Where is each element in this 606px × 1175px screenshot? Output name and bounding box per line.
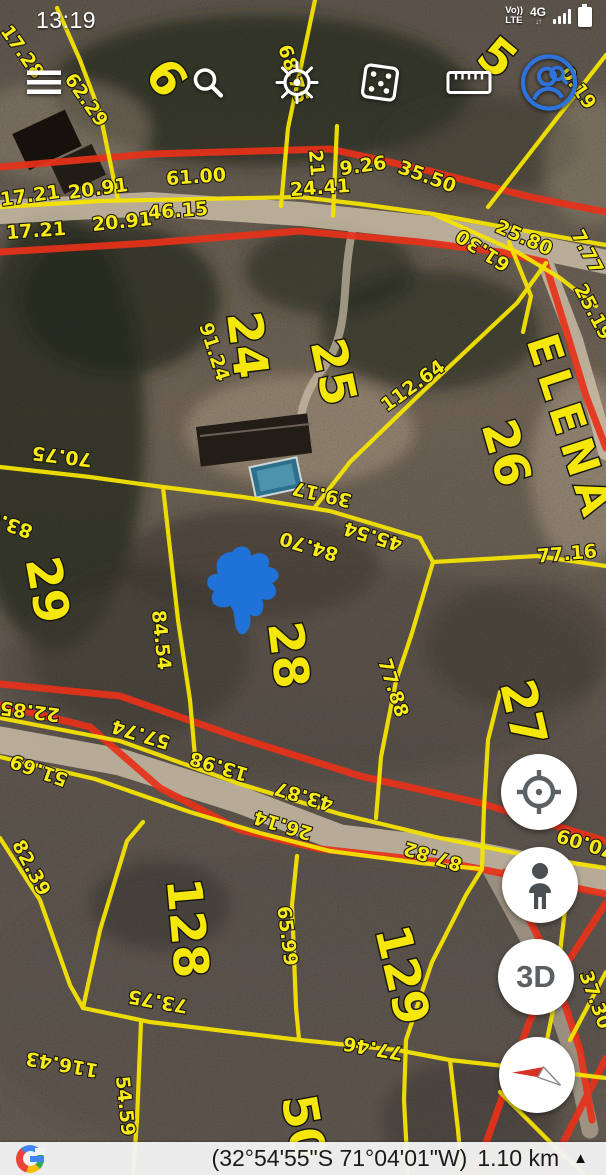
- data-activity-arrows: ↓↑: [530, 18, 546, 26]
- search-icon[interactable]: [190, 65, 226, 106]
- three-d-label: 3D: [516, 959, 556, 995]
- status-bar: 13:19 Vo)) LTE 4G ↓↑: [0, 0, 606, 40]
- app-screen: 17.2862.2968.750.1917.2120.9161.0046.151…: [0, 0, 606, 1175]
- measurement-label: 17.21: [5, 218, 66, 244]
- compass-button[interactable]: [499, 1037, 575, 1113]
- ruler-icon[interactable]: [444, 69, 494, 102]
- map-toolbar: [0, 52, 606, 118]
- map-info-bar[interactable]: (32°54'55"S 71°04'01"W) 1.10 km ▲: [0, 1142, 606, 1175]
- my-location-button[interactable]: [501, 754, 577, 830]
- compass-needle-icon: [508, 1046, 566, 1104]
- three-d-button[interactable]: 3D: [498, 939, 574, 1015]
- measurement-label: 46.15: [147, 198, 208, 224]
- measurement-label: 21: [304, 149, 328, 177]
- crosshair-target-icon: [513, 766, 565, 818]
- pegman-icon: [515, 858, 565, 912]
- scale-text: 1.10 km: [477, 1145, 559, 1172]
- measurement-label: 61.00: [165, 164, 226, 190]
- clock: 13:19: [36, 7, 96, 34]
- menu-icon[interactable]: [24, 68, 64, 103]
- volte-indicator: Vo)) LTE: [505, 6, 523, 26]
- battery-icon: [578, 7, 592, 27]
- account-search-icon[interactable]: [518, 52, 580, 119]
- dice-icon[interactable]: [357, 60, 403, 111]
- expand-arrow-icon[interactable]: ▲: [573, 1150, 588, 1167]
- parcel-number-label: 29: [14, 552, 81, 628]
- signal-bars-icon: [553, 8, 571, 24]
- network-type-indicator: 4G ↓↑: [530, 6, 546, 26]
- parcel-number-label: 24: [215, 308, 279, 381]
- coordinates-text: (32°54'55"S 71°04'01"W): [212, 1145, 468, 1172]
- helm-icon[interactable]: [274, 60, 320, 111]
- street-view-button[interactable]: [502, 847, 578, 923]
- parcel-number-label: 28: [256, 618, 320, 691]
- parcel-number-label: 128: [155, 876, 220, 981]
- google-logo: [16, 1145, 44, 1173]
